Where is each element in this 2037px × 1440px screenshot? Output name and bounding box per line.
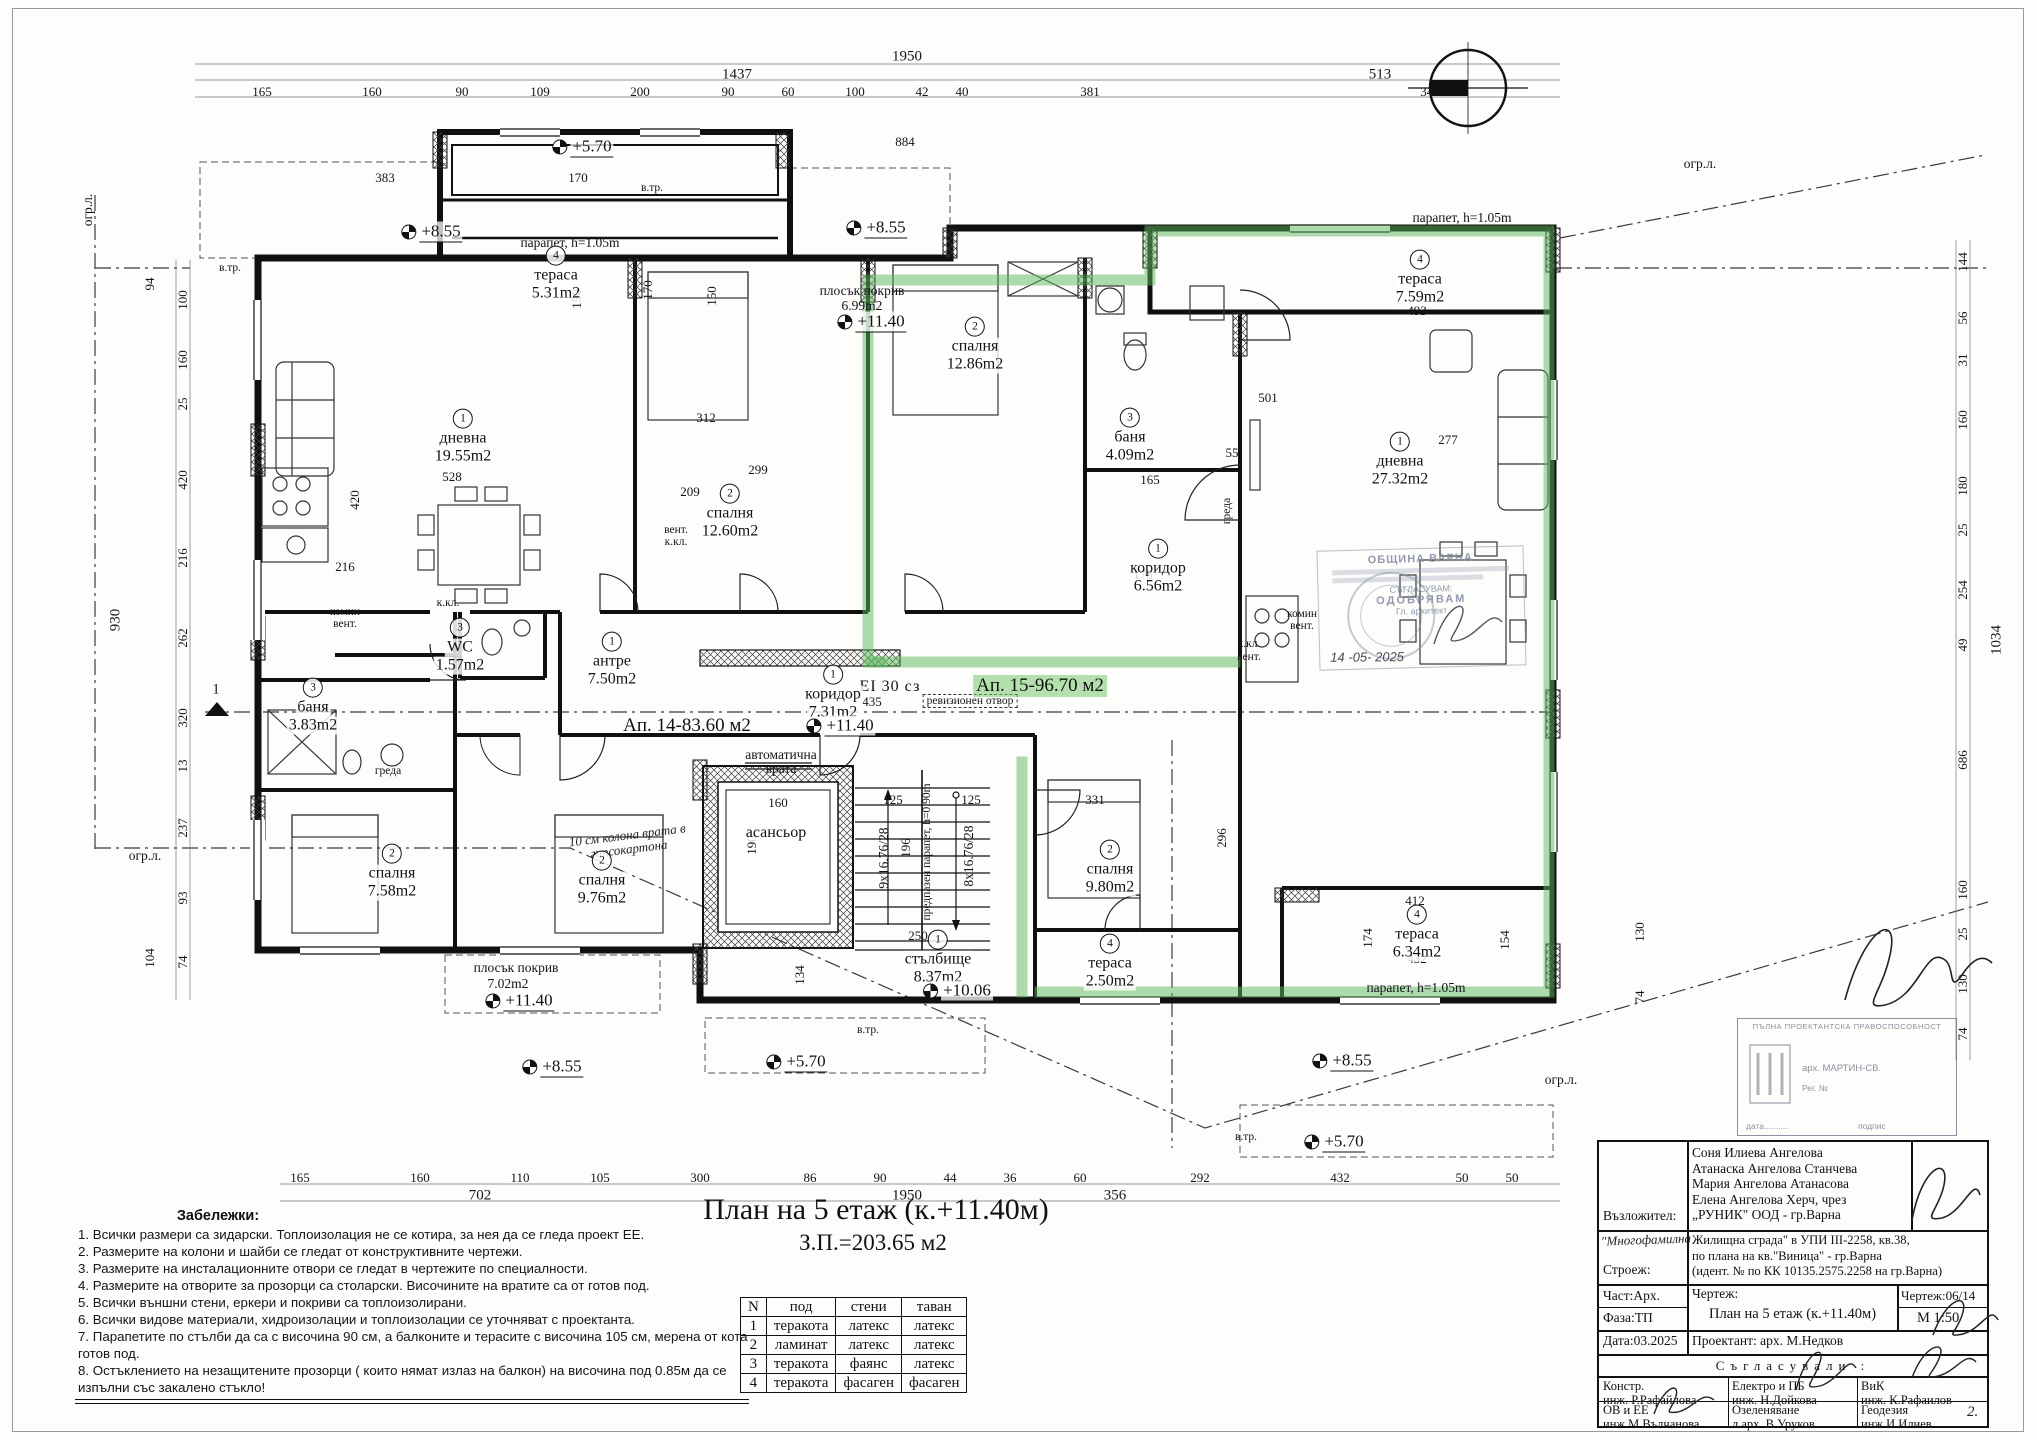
stamp-date: 14 -05- 2025 [1330, 649, 1404, 665]
col-n: N [741, 1298, 767, 1317]
dimension-label: 1034 [1989, 625, 2006, 655]
project-label: Строеж: [1603, 1262, 1651, 1278]
room-area: 12.86m2 [945, 356, 1005, 374]
dimension-guide-lines [176, 64, 1970, 1201]
room-finish-number: 1 [823, 665, 843, 685]
room-name: антре [591, 653, 633, 671]
room-label: 1 коридор 7.31m2 [803, 665, 863, 722]
dimension-label: 432 [1407, 951, 1427, 967]
dimension-label: 160 [175, 350, 191, 370]
annotation-label: парапет, h=1.05m [1366, 980, 1465, 996]
dimension-label: 86 [804, 1170, 817, 1186]
room-finish-number: 2 [965, 317, 985, 337]
dimension-label: 125 [961, 792, 981, 808]
room-area: 8.37m2 [912, 969, 964, 987]
dimension-label: 130 [1955, 974, 1971, 994]
round-seal-icon [1346, 571, 1436, 661]
annotation-label: плосък покрив [820, 283, 905, 299]
project-line: Жилищна сграда" в УПИ III-2258, кв.38, [1692, 1233, 1942, 1249]
dimension-label: 160 [1955, 410, 1971, 430]
annotation-label: комин вент. [318, 606, 372, 630]
dimension-label: 144 [1955, 252, 1971, 272]
dimension-label: 160 [410, 1170, 430, 1186]
elevation-marker: +5.70 [766, 1052, 827, 1073]
annotation-label: в.тр. [857, 1024, 879, 1036]
room-name: баня [295, 699, 330, 717]
dimension-label: 237 [175, 818, 191, 838]
dimension-label: 174 [1360, 928, 1376, 948]
dimension-label: 25 [175, 398, 191, 411]
room-label: 1 коридор 6.56m2 [1128, 539, 1188, 596]
room-name: спалня [1085, 861, 1136, 879]
dimension-label: 36 [1004, 1170, 1017, 1186]
room-name: баня [1112, 429, 1147, 447]
dimension-label: 44 [944, 1170, 957, 1186]
room-name: тераса [532, 267, 580, 285]
dimension-label: 170 [640, 280, 656, 300]
signer-landscape: Озеленяванел.арх. В.Уруков [1732, 1404, 1815, 1431]
dimension-label: 90 [456, 84, 469, 100]
room-finish-number: 2 [382, 844, 402, 864]
dimension-label: 49 [1955, 639, 1971, 652]
dimension-label: 74 [1632, 991, 1648, 1004]
elevation-marker: +5.70 [1304, 1132, 1365, 1153]
elevation-value: +5.70 [784, 1052, 827, 1073]
dimension-label: 420 [175, 470, 191, 490]
dimension-label: 56 [1955, 312, 1971, 325]
annotation-label: в.тр. [219, 262, 241, 274]
room-label: асансьор [744, 824, 808, 842]
dimension-label: 209 [680, 484, 700, 500]
note-item: 4. Размерите на отворите за прозорци са … [78, 1277, 754, 1294]
annotation-label: греда [375, 765, 401, 777]
dimension-label: 190 [744, 835, 760, 855]
dimension-label: 432 [1330, 1170, 1350, 1186]
dimension-label: 528 [442, 469, 462, 485]
level-symbol-icon [766, 1055, 781, 1070]
license-stamp: ПЪЛНА ПРОЕКТАНТСКА ПРАВОСПОСОБНОСТ арх. … [1737, 1018, 1957, 1136]
room-label: 1 дневна 27.32m2 [1370, 432, 1430, 489]
dimension-label: 930 [108, 609, 125, 632]
section-marker [205, 702, 229, 716]
dimension-label: 493 [1407, 303, 1427, 319]
license-reg: Рег. № [1802, 1083, 1828, 1093]
date-label: Дата:03.2025 [1603, 1333, 1678, 1349]
dimension-label: 25 [1955, 928, 1971, 941]
dimension-label: 105 [590, 1170, 610, 1186]
room-area: 3.83m2 [287, 717, 339, 735]
dimension-label: 154 [1497, 930, 1513, 950]
plan-built-area: З.П.=203.65 м2 [799, 1230, 947, 1256]
annotation-label: 10 см колона врата в гипсокартона [564, 821, 691, 863]
agreed-heading: Съгласували : [1716, 1358, 1871, 1374]
elevation-marker: +8.55 [522, 1057, 583, 1078]
level-symbol-icon [522, 1060, 537, 1075]
annotation-label: парапет, h=1.05m [520, 235, 619, 251]
room-label: 3 баня 4.09m2 [1104, 408, 1156, 465]
note-item: 2. Размерите на колони и шайби се гледат… [78, 1243, 754, 1260]
elevation-value: +8.55 [419, 222, 462, 243]
room-finish-number: 2 [720, 484, 740, 504]
room-area: 1.57m2 [434, 657, 486, 675]
stamp-header: ОБЩИНА ВАРНА [1318, 550, 1523, 567]
room-area: 5.31m2 [530, 285, 582, 303]
annotation-label: плосък покрив [474, 960, 559, 976]
dimension-label: 60 [782, 84, 795, 100]
dimension-label: 513 [1369, 67, 1392, 84]
room-finish-number: 1 [1390, 432, 1410, 452]
license-date-label: дата.......... [1746, 1121, 1788, 1131]
level-symbol-icon [401, 225, 416, 240]
elevation-marker: +8.55 [401, 222, 462, 243]
elevation-marker: +8.55 [1312, 1051, 1373, 1072]
drawing-title: План на 5 етаж (к.+11.40м) [1709, 1306, 1876, 1323]
dimension-label: 216 [175, 548, 191, 568]
plan-title: План на 5 етаж (к.+11.40м) [703, 1193, 1049, 1227]
finish-row: 1теракота латекслатекс [741, 1317, 967, 1336]
elevation-value: +5.70 [1322, 1132, 1365, 1153]
annotation-label: предпазен парапет, h=0.90m [921, 783, 933, 920]
signature [1830, 905, 2000, 1025]
room-label: 2 спалня 12.86m2 [945, 317, 1005, 374]
room-label: 2 спалня 9.80m2 [1084, 840, 1136, 897]
annotation-label: к.кл. [437, 597, 460, 609]
level-symbol-icon [837, 315, 852, 330]
finish-row: 3теракота фаянслатекс [741, 1355, 967, 1374]
north-arrow-icon [1408, 42, 1528, 134]
room-label: 2 спалня 9.76m2 [576, 851, 628, 908]
elevation-value: +8.55 [864, 218, 907, 239]
dimension-label: 160 [768, 795, 788, 811]
sheet-number: Чертеж:06/14 [1901, 1288, 1975, 1304]
project-line: (идент. № по КК 10135.2575.2258 на гр.Ва… [1692, 1264, 1942, 1280]
annotation-label: огр.л. [1545, 1072, 1578, 1088]
room-label: 4 тераса 2.50m2 [1084, 934, 1136, 991]
annotation-label: в.тр. [1235, 1131, 1257, 1143]
dimension-label: 55 [1226, 445, 1239, 461]
dimension-label: 381 [1080, 84, 1100, 100]
room-area: 7.31m2 [807, 704, 859, 722]
client-label: Възложител: [1603, 1208, 1676, 1224]
annotation-label: 6.99m2 [842, 298, 883, 314]
room-area: 12.60m2 [700, 523, 760, 541]
notes-list: 1. Всички размери са зидарски. Топлоизол… [78, 1226, 754, 1396]
dimension-label: 165 [252, 84, 272, 100]
dimension-label: 420 [347, 490, 363, 510]
dimension-label: 178 [1133, 567, 1153, 583]
dimension-label: 60 [1074, 1170, 1087, 1186]
room-finish-number: 3 [1120, 408, 1140, 428]
elevation-value: +11.40 [855, 312, 906, 333]
room-area: 9.76m2 [576, 890, 628, 908]
finish-table: N под стени таван 1теракота латекслатекс… [740, 1297, 967, 1393]
dimension-label: 200 [630, 84, 650, 100]
elevation-value: +8.55 [1330, 1051, 1373, 1072]
level-symbol-icon [806, 719, 821, 734]
room-finish-number: 1 [453, 409, 473, 429]
note-item: 8. Остъклението на незащитените прозорци… [78, 1362, 754, 1396]
site-boundary-lines [95, 155, 1990, 1148]
room-area: 2.50m2 [1084, 973, 1136, 991]
room-name: асансьор [744, 824, 808, 842]
client-name: „РУНИК" ООД - гр.Варна [1692, 1207, 1857, 1223]
note-item: 1. Всички размери са зидарски. Топлоизол… [78, 1226, 754, 1243]
room-label: 1 дневна 19.55m2 [433, 409, 493, 466]
dimension-label: 93 [175, 892, 191, 905]
dimension-label: 412 [1405, 893, 1425, 909]
annotation-label: EI 30 сз [860, 678, 921, 696]
notes-heading: Забележки: [177, 1208, 259, 1224]
dimension-label: 383 [375, 170, 395, 186]
room-name: спалня [705, 505, 756, 523]
annotation-label: огр.л. [1684, 156, 1717, 172]
dimension-label: 110 [510, 1170, 529, 1186]
dimension-label: 74 [1955, 1028, 1971, 1041]
room-area: 27.32m2 [1370, 471, 1430, 489]
elevation-marker: +10.06 [923, 981, 993, 1002]
dimension-label: 277 [1438, 432, 1458, 448]
dimension-label: 299 [748, 462, 768, 478]
dimension-label: 254 [1955, 580, 1971, 600]
dimension-label: 296 [1214, 828, 1230, 848]
room-finish-number: 1 [928, 930, 948, 950]
handwritten-number: 2. [1967, 1404, 1978, 1421]
dimension-label: 1950 [892, 49, 922, 66]
level-symbol-icon [485, 994, 500, 1009]
annotation-label: ревизионен отвор [923, 694, 1018, 708]
room-name: спалня [577, 872, 628, 890]
dimension-label: 331 [1085, 792, 1105, 808]
dimension-label: 1437 [722, 67, 752, 84]
part-label: Част:Арх. [1603, 1288, 1660, 1304]
door-arcs [430, 290, 1290, 930]
dimension-label: 180 [1955, 476, 1971, 496]
level-symbol-icon [1312, 1054, 1327, 1069]
dimension-label: 160 [1955, 880, 1971, 900]
room-finish-number: 4 [1410, 250, 1430, 270]
dimension-label: 250 [908, 928, 928, 944]
dimension-label: 50 [1456, 1170, 1469, 1186]
note-item: 5. Всички външни стени, еркери и покриви… [78, 1294, 754, 1311]
room-label: 3 баня 3.83m2 [287, 678, 339, 735]
project-line: по плана на кв."Виница" - гр.Варна [1692, 1249, 1942, 1265]
annotation-label: огр.л. [80, 194, 96, 227]
annotation-label: автоматична врата [731, 748, 831, 776]
annotation-label: 7.02m2 [488, 976, 529, 992]
elevation-value: +8.55 [540, 1057, 583, 1078]
room-area: 6.34m2 [1391, 944, 1443, 962]
room-name: спалня [367, 865, 418, 883]
elevation-value: +5.70 [570, 137, 613, 158]
level-symbol-icon [923, 984, 938, 999]
room-finish-number: 3 [450, 618, 470, 638]
dimension-label: 100 [175, 290, 191, 310]
finish-row: 2ламинат латекслатекс [741, 1336, 967, 1355]
license-sign-label: подпис [1858, 1121, 1886, 1131]
scale-label: М 1:50 [1917, 1310, 1959, 1327]
license-emblem-icon [1748, 1043, 1792, 1105]
annotation-label: огр.л. [129, 848, 162, 864]
dimension-label: 686 [1955, 750, 1971, 770]
annotation-label: вент. [1237, 651, 1261, 663]
annotation-label: к.кл. [665, 536, 688, 548]
dimension-label: 884 [895, 134, 915, 150]
dimension-label: 501 [1258, 390, 1278, 406]
elevation-marker: +5.70 [552, 137, 613, 158]
room-finish-number: 1 [602, 632, 622, 652]
room-area: 7.59m2 [1394, 289, 1446, 307]
dimension-label: 50 [1506, 1170, 1519, 1186]
annotation-label: 8x16.76/28 [961, 825, 977, 886]
room-area: 19.55m2 [433, 448, 493, 466]
room-finish-number: 3 [303, 678, 323, 698]
drawing-sheet: 1950143751316516090109200906010042403813… [0, 0, 2037, 1440]
room-area: 4.09m2 [1104, 447, 1156, 465]
annotation-label: греда [1221, 498, 1233, 524]
signer-ovee: ОВ и ЕЕинж.М.Вълчанова [1603, 1404, 1699, 1431]
room-finish-number: 4 [1407, 905, 1427, 925]
dimension-label: 150 [704, 286, 720, 306]
dimension-label: 74 [175, 956, 191, 969]
dimension-label: 31 [1955, 354, 1971, 367]
annotation-label: к.кл. [1238, 638, 1261, 650]
annotation-label: парапет, h=1.05m [1412, 210, 1511, 226]
elevation-marker: +11.40 [837, 312, 906, 333]
elevation-marker: +11.40 [485, 991, 554, 1012]
elevation-value: +11.40 [824, 716, 875, 737]
title-block: Възложител: Соня Илиева АнгеловаАтанаска… [1597, 1140, 1989, 1428]
staircase [855, 770, 990, 950]
project-handwritten: "Многофамилна [1601, 1230, 1691, 1249]
annotation-label: в.тр. [641, 182, 663, 194]
dimension-label: 130 [1632, 922, 1648, 942]
client-name: Мария Ангелова Атанасова [1692, 1176, 1857, 1192]
room-name: дневна [1374, 453, 1425, 471]
col-floor: под [766, 1298, 836, 1317]
dimension-label: 170 [568, 170, 588, 186]
elevation-marker: +8.55 [846, 218, 907, 239]
room-label: 2 спалня 12.60m2 [700, 484, 760, 541]
room-area: 7.58m2 [366, 883, 418, 901]
dimension-label: 196 [898, 838, 914, 858]
room-label: 1 антре 7.50m2 [586, 632, 638, 689]
dimension-label: 435 [862, 694, 882, 710]
room-name: стълбище [903, 951, 973, 969]
client-names: Соня Илиева АнгеловаАтанаска Ангелова Ст… [1692, 1145, 1857, 1223]
dimension-label: 702 [469, 1188, 492, 1205]
dimension-label: 165 [1140, 472, 1160, 488]
license-name: арх. МАРТИН-СВ. [1802, 1063, 1881, 1074]
level-symbol-icon [1304, 1135, 1319, 1150]
phase-label: Фаза:ТП [1603, 1310, 1653, 1326]
dimension-label: 312 [696, 410, 716, 426]
dimension-label: 165 [290, 1170, 310, 1186]
annotation-label: 9x16.76/28 [876, 827, 892, 888]
dimension-label: 300 [690, 1170, 710, 1186]
room-label: 4 тераса 7.59m2 [1394, 250, 1446, 307]
room-finish-number: 4 [1100, 934, 1120, 954]
apartment-label: Ап. 15-96.70 м2 [973, 675, 1107, 697]
dimension-label: 216 [335, 559, 355, 575]
room-area: 7.50m2 [586, 671, 638, 689]
room-finish-number: 2 [1100, 840, 1120, 860]
dimension-label: 94 [142, 278, 158, 291]
room-area: 6.56m2 [1132, 578, 1184, 596]
level-symbol-icon [552, 140, 567, 155]
room-area: 9.80m2 [1084, 879, 1136, 897]
dimension-label: 320 [175, 708, 191, 728]
room-label: 2 спалня 7.58m2 [366, 844, 418, 901]
dimension-label: 42 [916, 84, 929, 100]
room-label: 4 тераса 5.31m2 [530, 246, 582, 303]
dimension-label: 40 [956, 84, 969, 100]
dimension-label: 160 [362, 84, 382, 100]
note-item: 7. Парапетите по стълби да са с височина… [78, 1328, 754, 1362]
dimension-label: 100 [845, 84, 865, 100]
dimension-label: 343 [1420, 84, 1440, 100]
note-item: 3. Размерите на инсталационните отвори с… [78, 1260, 754, 1277]
license-title: ПЪЛНА ПРОЕКТАНТСКА ПРАВОСПОСОБНОСТ [1738, 1022, 1956, 1031]
finish-table-header: N под стени таван [741, 1298, 967, 1317]
dimension-label: 134 [792, 965, 808, 985]
elevation-marker: +11.40 [806, 716, 875, 737]
room-name: коридор [803, 686, 863, 704]
dimension-label: 262 [175, 628, 191, 648]
col-ceiling: таван [901, 1298, 967, 1317]
dimension-label: 90 [874, 1170, 887, 1186]
room-name: спалня [950, 338, 1001, 356]
client-name: Атанаска Ангелова Станчева [1692, 1161, 1857, 1177]
dimension-label: 13 [175, 760, 191, 773]
drawing-label: Чертеж: [1692, 1286, 1738, 1302]
dimension-label: 90 [722, 84, 735, 100]
col-walls: стени [836, 1298, 902, 1317]
notes-rule [75, 1399, 749, 1404]
project-lines: Жилищна сграда" в УПИ III-2258, кв.38,по… [1692, 1233, 1942, 1280]
room-name: коридор [1128, 560, 1188, 578]
level-symbol-icon [846, 221, 861, 236]
dimension-label: 1 [212, 682, 220, 699]
room-name: тераса [1396, 271, 1444, 289]
elevation-value: +11.40 [503, 991, 554, 1012]
finish-row: 4теракота фасагенфасаген [741, 1374, 967, 1393]
signer-geodesy: Геодезияинж.И.Илиев [1861, 1404, 1932, 1431]
dimension-label: 356 [1104, 1188, 1127, 1205]
note-item: 6. Всички видове материали, хидроизолаци… [78, 1311, 754, 1328]
dimension-label: 25 [1955, 524, 1971, 537]
dimension-label: 150 [569, 289, 585, 309]
elevator-shaft [703, 766, 853, 948]
annotation-label: вент. [664, 524, 688, 536]
room-label: 4 тераса 6.34m2 [1391, 905, 1443, 962]
room-label: 1 стълбище 8.37m2 [903, 930, 973, 987]
room-label: 3 WC 1.57m2 [434, 618, 486, 675]
room-name: тераса [1393, 926, 1441, 944]
room-finish-number: 2 [592, 851, 612, 871]
dimension-label: 292 [1190, 1170, 1210, 1186]
room-finish-number: 1 [1148, 539, 1168, 559]
client-name: Елена Ангелова Херч, чрез [1692, 1192, 1857, 1208]
room-finish-number: 4 [546, 246, 566, 266]
dimension-label: 104 [142, 948, 158, 968]
elevation-value: +10.06 [941, 981, 993, 1002]
apartment-label: Ап. 14-83.60 м2 [620, 715, 754, 737]
room-name: WC [445, 639, 475, 657]
room-name: тераса [1086, 955, 1134, 973]
room-name: дневна [437, 430, 488, 448]
designer-label: Проектант: арх. М.Недков [1692, 1333, 1843, 1349]
client-name: Соня Илиева Ангелова [1692, 1145, 1857, 1161]
